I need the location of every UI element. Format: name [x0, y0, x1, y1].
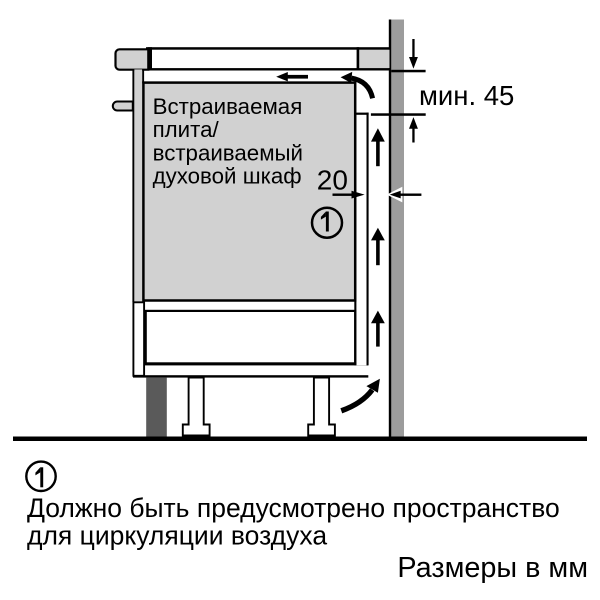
svg-text:духовой шкаф: духовой шкаф	[153, 163, 302, 188]
svg-text:мин. 45: мин. 45	[419, 80, 514, 111]
svg-text:20: 20	[317, 165, 348, 196]
svg-text:плита/: плита/	[153, 117, 220, 142]
svg-text:для циркуляции воздуха: для циркуляции воздуха	[27, 521, 327, 551]
svg-text:Встраиваемая: Встраиваемая	[153, 94, 303, 119]
svg-text:Должно быть предусмотрено прос: Должно быть предусмотрено пространство	[27, 493, 560, 523]
svg-text:Размеры в мм: Размеры в мм	[397, 552, 588, 584]
svg-text:встраиваемый: встраиваемый	[153, 140, 303, 165]
